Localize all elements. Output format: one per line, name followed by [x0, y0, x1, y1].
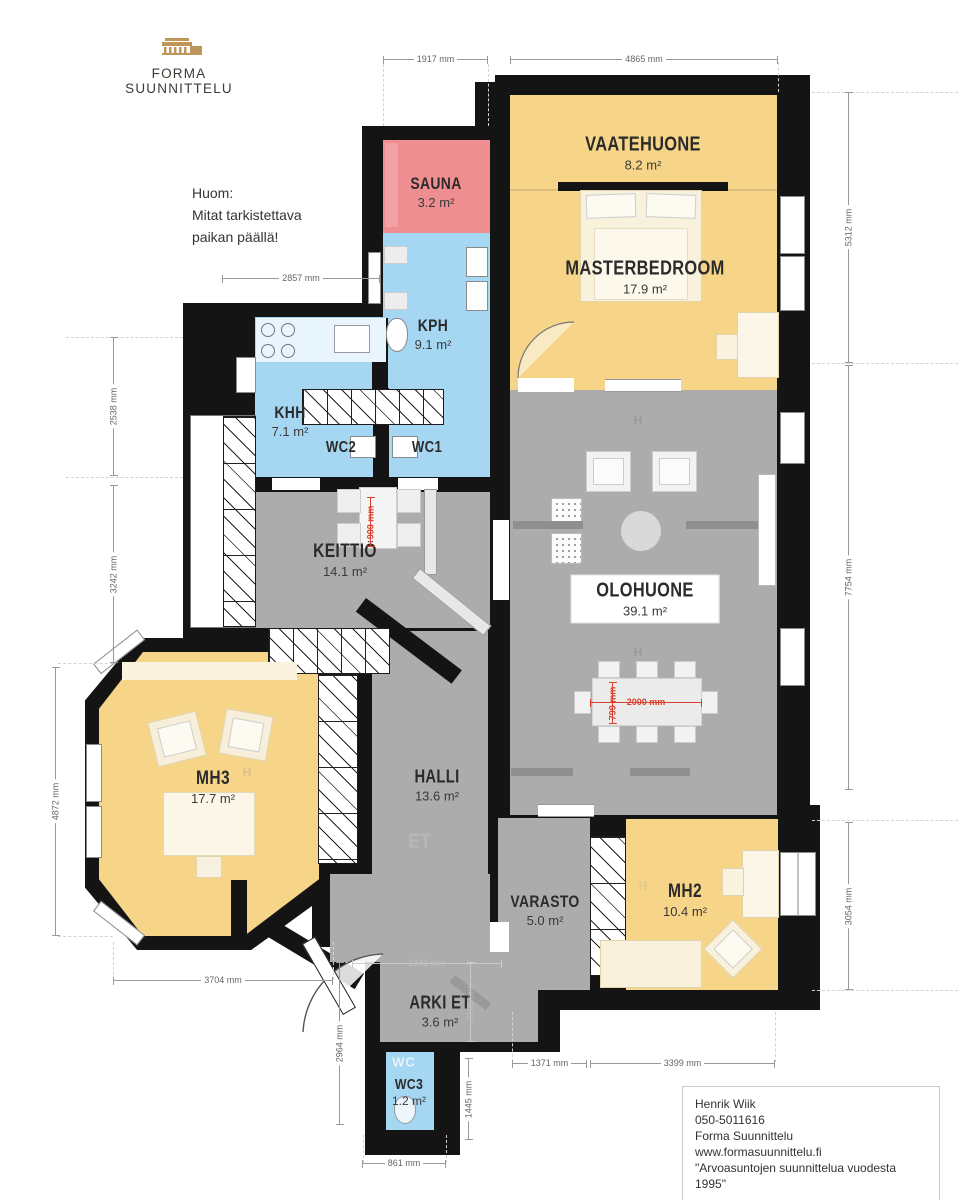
- extension-line: [66, 337, 183, 338]
- closet-mh3-east: [318, 674, 358, 864]
- room-name: KEITTIÖ: [313, 541, 377, 563]
- rail-olohuone-sw: [511, 768, 573, 776]
- dim-left-upper: 2538 mm: [113, 337, 114, 476]
- dim-khh-width: 2857 mm: [222, 278, 380, 279]
- dim-arki-width: 1843 mm: [352, 963, 502, 964]
- building-icon: [156, 38, 202, 58]
- kitchen-chair: [397, 523, 421, 547]
- extension-line: [812, 820, 958, 821]
- room-name: KPH: [418, 316, 448, 336]
- room-area: 17.7 m²: [191, 791, 235, 806]
- window-olohuone-east-1: [780, 412, 805, 464]
- shower-fixture-2: [384, 292, 408, 310]
- dim-top-master: 4865 mm: [510, 59, 778, 60]
- room-area: 7.1 m²: [271, 424, 309, 439]
- dim-bottom-mh3: 3704 mm: [113, 980, 333, 981]
- door-gap-khh-south: [272, 478, 320, 490]
- dining-chair: [636, 726, 658, 743]
- contact-name: Henrik Wiik: [695, 1096, 927, 1112]
- dim-left-mid: 3242 mm: [113, 485, 114, 663]
- label-wc1: WC1: [409, 439, 446, 457]
- kph-toilet: [386, 318, 408, 352]
- armchair-olohuone-1: [586, 451, 631, 492]
- pillow-master-left: [586, 193, 637, 219]
- label-masterbedroom: MASTERBEDROOM 17.9 m²: [548, 258, 742, 297]
- label-wc2: WC2: [323, 439, 360, 457]
- dining-chair: [674, 661, 696, 678]
- room-area: 14.1 m²: [306, 564, 384, 579]
- extension-line: [488, 64, 489, 126]
- room-name: WC3: [395, 1076, 423, 1093]
- mh2-desk: [742, 850, 779, 918]
- room-area: 13.6 m²: [410, 789, 465, 804]
- room-area: 9.1 m²: [414, 337, 451, 352]
- dim-entry-height: 2964 mm: [339, 962, 340, 1125]
- dim-bottom-wc3: 861 mm: [362, 1163, 446, 1164]
- label-mh2: MH2 10.4 m²: [663, 881, 707, 919]
- dim-kitchen-clearance: 900 mm: [370, 497, 371, 547]
- dim-table-width: 799 mm: [612, 682, 613, 724]
- window-mh2-east: [780, 852, 816, 916]
- room-name: MH2: [667, 881, 703, 903]
- label-khh: KHH 7.1 m²: [271, 403, 309, 439]
- label-varasto: VARASTO 5.0 m²: [503, 892, 587, 928]
- label-halli: HALLI 13.6 m²: [410, 767, 465, 804]
- kitchen-chair: [397, 489, 421, 513]
- door-gap-master: [518, 378, 574, 392]
- dim-wc3-height: 1445 mm: [468, 1058, 469, 1140]
- stove-burner: [261, 323, 275, 337]
- stove-burner: [281, 323, 295, 337]
- coffee-table-round: [621, 511, 661, 551]
- closet-wc-row: [302, 389, 444, 425]
- sauna-bench: [385, 143, 398, 227]
- wall-mh3-stub: [231, 880, 247, 936]
- extension-line: [512, 1012, 513, 1062]
- rail-olohuone-ne: [686, 521, 758, 529]
- extension-line: [778, 62, 779, 92]
- chair-cushion: [157, 720, 197, 757]
- contact-website: www.formasuunnittelu.fi: [695, 1144, 927, 1160]
- extension-line: [363, 1135, 364, 1163]
- closet-khh-west: [190, 415, 256, 628]
- dining-chair: [598, 661, 620, 678]
- door-gap-master-south: [605, 379, 681, 392]
- brand-name: FORMA SUUNNITTELU: [104, 66, 254, 96]
- lamp-marker-h: H: [634, 413, 643, 427]
- label-mh3: MH3 17.7 m²: [191, 768, 235, 806]
- extension-line: [446, 1135, 447, 1163]
- desk-master: [737, 312, 779, 378]
- room-area: 3.2 m²: [405, 195, 467, 210]
- contact-phone: 050-5011616: [695, 1112, 927, 1128]
- closet-khh-west-cells: [223, 416, 256, 627]
- room-name: VARASTO: [510, 892, 579, 912]
- watermark-et: ET: [408, 831, 431, 854]
- kph-sink-1: [466, 247, 488, 277]
- extension-line: [812, 990, 958, 991]
- window-mh3-west-1: [86, 744, 102, 802]
- dim-left-mh3: 4872 mm: [55, 667, 56, 936]
- kitchen-counter-vertical: [424, 489, 437, 575]
- dim-right-upper: 5312 mm: [848, 92, 849, 363]
- label-kph: KPH 9.1 m²: [414, 316, 451, 352]
- contact-box: Henrik Wiik 050-5011616 Forma Suunnittel…: [682, 1086, 940, 1200]
- dim-right-mid: 7754 mm: [848, 365, 849, 790]
- room-area: 10.4 m²: [663, 904, 707, 919]
- mh3-desk-chair: [196, 856, 222, 878]
- contact-slogan: "Arvoasuntojen suunnittelua vuodesta 199…: [695, 1160, 927, 1192]
- mh2-bed: [600, 940, 702, 988]
- rail-olohuone-se: [630, 768, 690, 776]
- door-gap-olohuone-west: [493, 520, 509, 600]
- extension-line: [383, 64, 384, 126]
- dining-chair: [598, 726, 620, 743]
- window-mh3-west-2: [86, 806, 102, 858]
- window-master-east-1: [780, 196, 805, 254]
- extension-line: [66, 477, 183, 478]
- room-name: MH3: [195, 768, 231, 790]
- window-khh-flue: [236, 357, 256, 393]
- chair-master: [716, 334, 738, 360]
- dining-chair: [636, 661, 658, 678]
- room-area: 39.1 m²: [586, 604, 705, 619]
- dining-chair: [574, 691, 591, 714]
- extension-line: [58, 936, 113, 937]
- armchair-cushion: [659, 458, 690, 485]
- dim-bottom-mh2: 3399 mm: [590, 1063, 775, 1064]
- room-name: OLOHUONE: [596, 580, 693, 603]
- dim-top-sauna: 1917 mm: [383, 59, 488, 60]
- label-sauna: SAUNA 3.2 m²: [405, 174, 467, 210]
- room-name: HALLI: [414, 767, 459, 788]
- dim-arki-height: 2195 mm: [470, 962, 471, 1042]
- room-name: WC2: [326, 439, 356, 457]
- armchair-olohuone-2: [652, 451, 697, 492]
- label-vaatehuone: VAATEHUONE 8.2 m²: [572, 134, 713, 173]
- lamp-marker-h: H: [634, 645, 643, 659]
- extension-line: [113, 942, 114, 980]
- note-line: Mitat tarkistettava: [192, 204, 302, 226]
- extension-line: [812, 363, 958, 364]
- room-name: SAUNA: [410, 174, 461, 194]
- door-arc-master: [516, 320, 576, 380]
- pillow-master-right: [646, 193, 697, 219]
- dim-right-mh2: 3054 mm: [848, 822, 849, 990]
- brand-logo: FORMA SUUNNITTELU: [104, 38, 254, 96]
- shower-fixture-1: [384, 246, 408, 264]
- kph-sink-2: [466, 281, 488, 311]
- lamp-marker-h: H: [639, 879, 648, 893]
- contact-company: Forma Suunnittelu: [695, 1128, 927, 1144]
- extension-line: [812, 92, 958, 93]
- radiator-olohuone: [758, 474, 776, 586]
- note-line: Huom:: [192, 182, 302, 204]
- dining-chair: [674, 726, 696, 743]
- speaker-grid-2: [551, 533, 582, 564]
- dim-bottom-varasto: 1371 mm: [512, 1063, 587, 1064]
- extension-line: [333, 942, 334, 980]
- chair-cushion: [228, 717, 265, 752]
- rail-olohuone-nw: [513, 521, 583, 529]
- kitchen-chair: [337, 489, 361, 513]
- room-name: VAATEHUONE: [585, 134, 701, 157]
- door-gap-olohuone-south: [538, 804, 594, 817]
- khh-sink: [334, 325, 370, 353]
- stove-burner: [281, 344, 295, 358]
- room-name: MASTERBEDROOM: [565, 258, 724, 281]
- dining-chair: [701, 691, 718, 714]
- mh3-chair-2: [218, 708, 273, 762]
- room-area: 5.0 m²: [503, 913, 587, 928]
- room-area: 1.2 m²: [392, 1094, 427, 1108]
- room-name: WC1: [412, 439, 442, 457]
- room-area: 17.9 m²: [548, 282, 742, 297]
- room-area: 8.2 m²: [572, 158, 713, 173]
- site-note: Huom: Mitat tarkistettava paikan päällä!: [192, 182, 302, 248]
- lamp-marker-h: H: [243, 765, 252, 779]
- note-line: paikan päällä!: [192, 226, 302, 248]
- floor-plan-page: FORMA SUUNNITTELU Huom: Mitat tarkistett…: [0, 0, 960, 1200]
- armchair-cushion: [593, 458, 624, 485]
- extension-line: [58, 663, 113, 664]
- room-name: KHH: [274, 403, 305, 423]
- ottoman-cushion: [713, 929, 753, 969]
- extension-line: [775, 1012, 776, 1062]
- mh2-desk-chair: [722, 868, 744, 896]
- stove-burner: [261, 344, 275, 358]
- label-wc3: WC3 1.2 m²: [392, 1076, 427, 1108]
- mh3-window-sill: [122, 662, 297, 680]
- window-master-east-2: [780, 256, 805, 311]
- label-olohuone: OLOHUONE 39.1 m²: [571, 575, 720, 624]
- watermark-wc: WC: [392, 1055, 416, 1070]
- window-olohuone-east-2: [780, 628, 805, 686]
- room-name: ARKI ET: [409, 993, 470, 1014]
